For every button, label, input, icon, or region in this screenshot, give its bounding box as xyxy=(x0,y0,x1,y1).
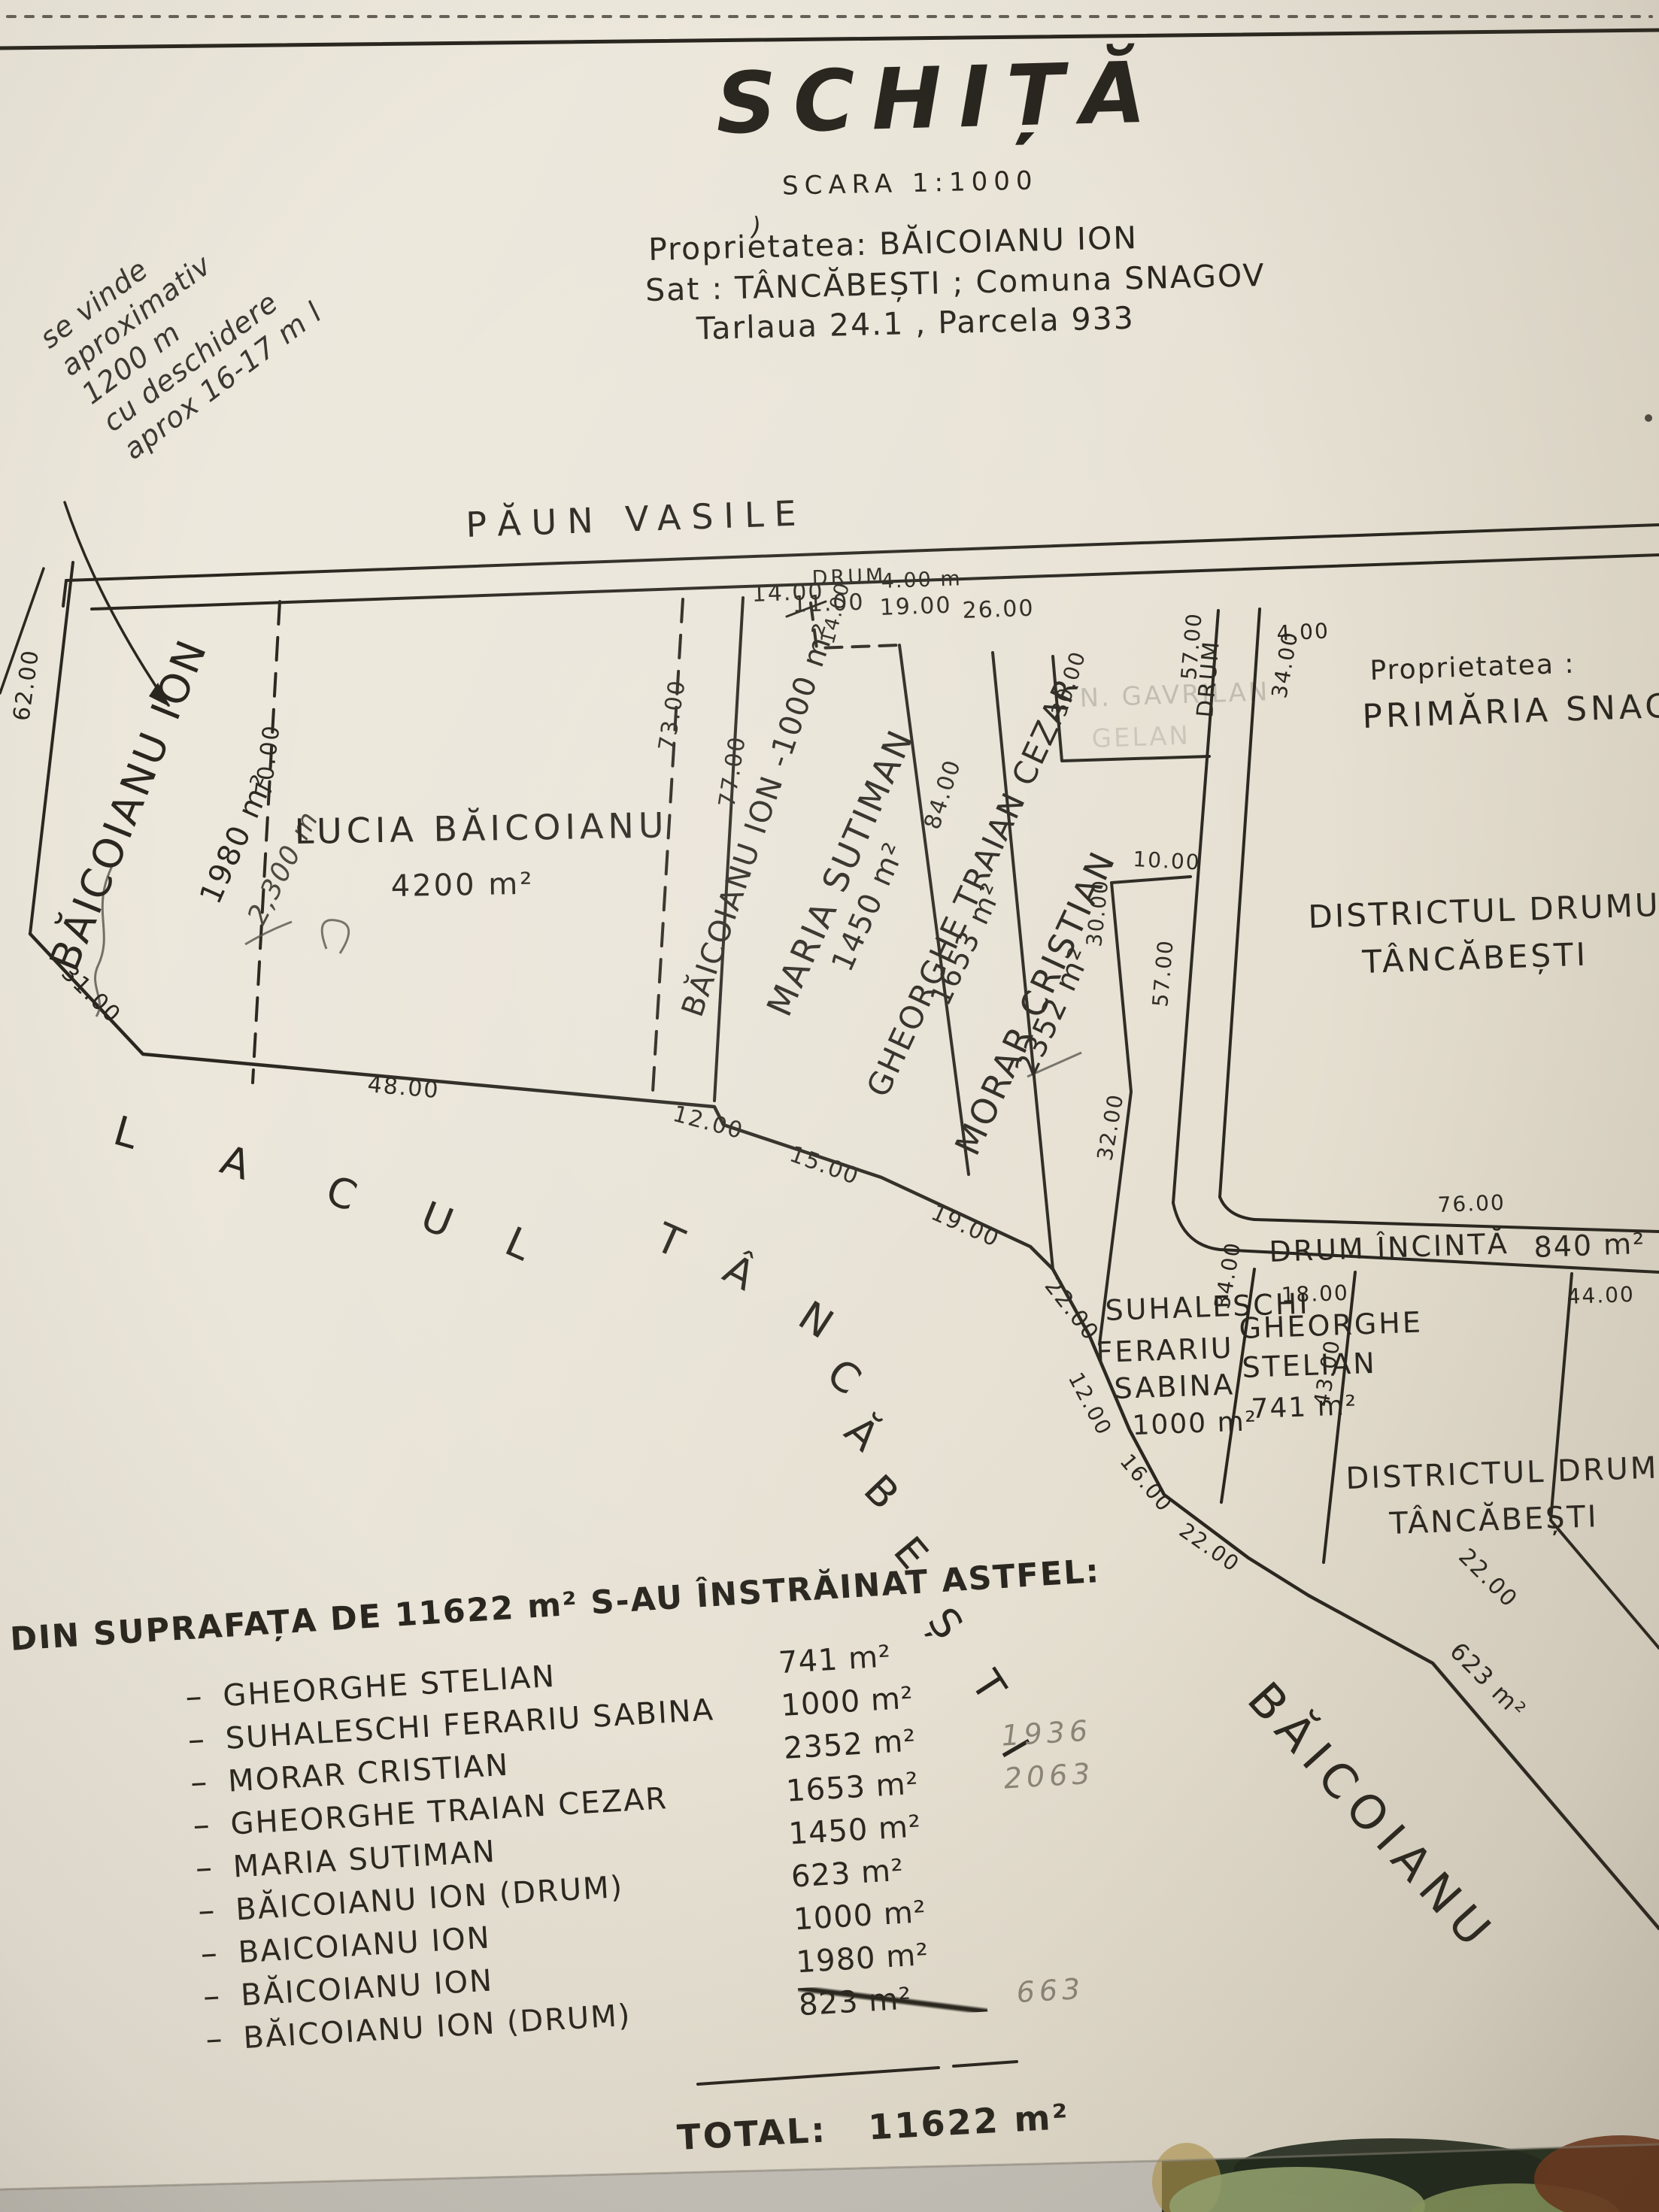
label-propright: Proprietatea : xyxy=(1369,648,1576,686)
label-suh3: SABINA xyxy=(1114,1368,1236,1405)
map-line-28 xyxy=(954,2062,1017,2066)
photographed-cadastral-sketch: 14.0011.0014.0019.0026.004.0034.0062.007… xyxy=(0,0,1659,2212)
measurement-k22: 22.00 xyxy=(1453,1544,1523,1614)
label-p2area: 4200 m² xyxy=(390,867,534,904)
label-d2b: TÂNCĂBEȘTI xyxy=(1388,1497,1600,1541)
measurement-i76: 76.00 xyxy=(1437,1190,1506,1217)
label-stel3: 741 m² xyxy=(1251,1390,1358,1425)
label-d2a: DISTRICTUL DRUMURI xyxy=(1345,1449,1659,1496)
measurement-s15: 15.00 xyxy=(786,1141,863,1191)
row-area: 1653 m² xyxy=(785,1763,975,1809)
row-dash: – xyxy=(199,1932,239,1973)
lake-letter-9: Ă xyxy=(836,1406,888,1460)
label-incintaarea: 840 m² xyxy=(1533,1227,1646,1264)
total-label: TOTAL: xyxy=(676,2109,828,2158)
map-line-27 xyxy=(698,2068,939,2084)
map-line-17 xyxy=(1173,1203,1220,1250)
row-area: 1450 m² xyxy=(787,1806,977,1852)
stray-dot xyxy=(1645,414,1652,422)
row-dash: – xyxy=(202,1975,242,2016)
label-p2name: LUCIA BĂICOIANU xyxy=(294,804,669,852)
measurement-k623: 623 m² xyxy=(1444,1637,1532,1725)
row-dash: – xyxy=(190,1762,229,1802)
row-dash: – xyxy=(195,1847,235,1888)
label-faded2: GELAN xyxy=(1091,720,1191,754)
measurement-s48: 48.00 xyxy=(366,1071,441,1104)
measurement-l62: 62.00 xyxy=(8,647,44,723)
page-title: SCHIȚĂ xyxy=(714,44,1163,153)
label-suh4: 1000 m² xyxy=(1132,1406,1258,1441)
label-paun: PĂUN VASILE xyxy=(465,492,807,545)
label-suh2: FERARIU xyxy=(1096,1332,1235,1369)
measurement-i44: 44.00 xyxy=(1566,1282,1635,1309)
lake-letter-5: T xyxy=(648,1214,692,1268)
measurement-l84: 84.00 xyxy=(919,756,966,832)
map-line-1 xyxy=(0,30,1659,48)
lake-letter-7: N xyxy=(790,1292,842,1348)
scale-label: SCARA 1:1000 xyxy=(782,165,1039,201)
map-line-7 xyxy=(253,601,280,1083)
measurement-r34: 34.00 xyxy=(1266,629,1303,701)
row-pencil-note: 1936 xyxy=(1000,1714,1093,1753)
lake-letter-0: L xyxy=(108,1107,143,1159)
map-line-26 xyxy=(65,502,168,705)
measurement-s19: 19.00 xyxy=(927,1199,1004,1253)
lake-letter-6: Â xyxy=(716,1245,763,1300)
row-area: 623 m² xyxy=(790,1849,980,1895)
lake-letter-8: C xyxy=(818,1350,870,1404)
label-faded1: N. GAVRILAN xyxy=(1079,677,1270,714)
row-area: 823 m² xyxy=(798,1977,987,2023)
map-line-3 xyxy=(63,580,66,606)
map-line-5 xyxy=(30,562,73,934)
label-drumtopw: 4.00 m xyxy=(881,567,962,593)
lake-letter-3: U xyxy=(414,1192,459,1247)
map-line-24 xyxy=(1551,1520,1659,1648)
lake-letter-10: B xyxy=(855,1465,908,1518)
measurement-l77: 77.00 xyxy=(714,734,751,809)
row-area: 1000 m² xyxy=(780,1677,969,1723)
lake-letter-1: A xyxy=(215,1135,256,1189)
measurement-s22: 22.00 xyxy=(1039,1273,1105,1346)
measurement-d57b: 57.00 xyxy=(1148,938,1178,1008)
row-area: 1000 m² xyxy=(793,1892,982,1938)
label-d1a: DISTRICTUL DRUMURI xyxy=(1308,885,1659,935)
measurement-t26: 26.00 xyxy=(962,595,1035,624)
textile-silver xyxy=(0,2161,1162,2212)
row-dash: – xyxy=(187,1719,226,1759)
summary-list: –GHEORGHE STELIAN741 m²–SUHALESCHI FERAR… xyxy=(184,1613,1303,2063)
row-dash: – xyxy=(205,2018,244,2059)
row-pencil-note: 2063 xyxy=(1003,1756,1096,1795)
lake-letter-2: C xyxy=(320,1166,363,1220)
label-stel2: STELIAN xyxy=(1242,1347,1378,1384)
row-area: 741 m² xyxy=(778,1635,967,1680)
row-dash: – xyxy=(192,1804,232,1845)
measurement-l73: 73.00 xyxy=(654,677,691,753)
label-primaria: PRIMĂRIA SNAGOV xyxy=(1361,683,1659,736)
row-dash: – xyxy=(184,1676,224,1717)
row-pencil-note: 663 xyxy=(1015,1972,1085,2009)
label-drumtop: DRUM xyxy=(811,565,887,590)
measurement-n10: 10.00 xyxy=(1133,847,1202,875)
row-area: 1980 m² xyxy=(796,1935,985,1980)
lake-letter-4: L xyxy=(499,1217,538,1270)
label-stel1: GHEORGHE xyxy=(1239,1305,1424,1345)
map-line-18 xyxy=(1220,1197,1254,1220)
pencil-squiggle-3 xyxy=(322,920,348,953)
label-p1name: BĂICOIANU ION xyxy=(40,631,217,977)
measurement-t19: 19.00 xyxy=(879,592,952,621)
label-d1b: TÂNCĂBEȘTI xyxy=(1361,935,1589,980)
row-area: 2352 m² xyxy=(783,1720,972,1766)
row-dash: – xyxy=(197,1890,237,1931)
